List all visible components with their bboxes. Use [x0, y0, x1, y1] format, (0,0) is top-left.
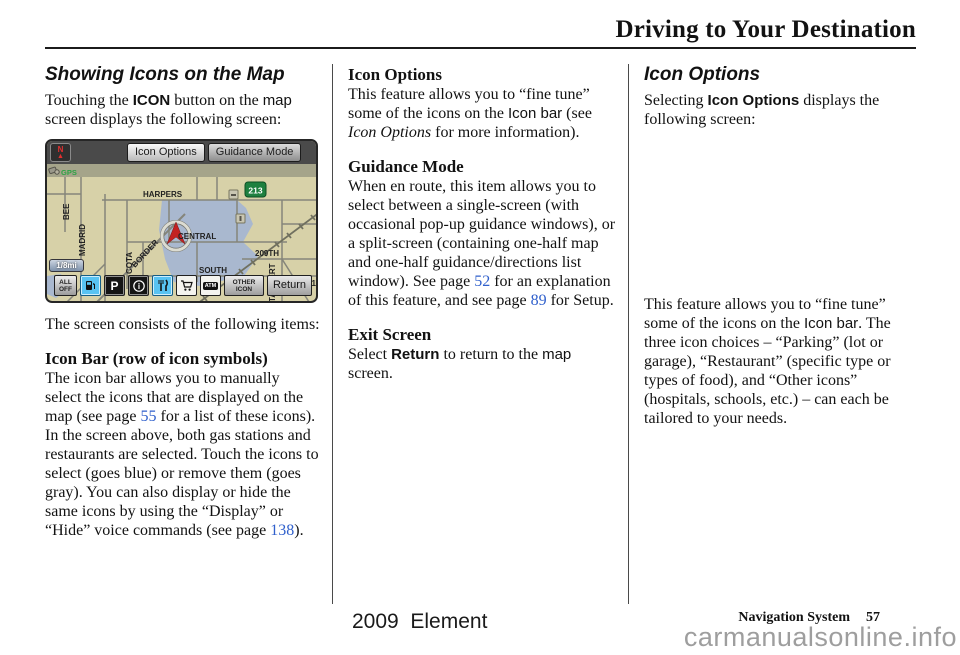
north-arrow-icon: ▲ [57, 153, 64, 160]
map-icon-bar: ALL OFF P i [54, 273, 312, 298]
shopping-icon-button[interactable] [176, 275, 197, 296]
info-icon-button[interactable]: i [128, 275, 149, 296]
fork-knife-icon [156, 279, 169, 292]
info-icon: i [132, 279, 146, 293]
column-right: Icon Options Selecting Icon Options disp… [628, 64, 916, 604]
street-label-209th: 209TH [255, 249, 279, 258]
gas-station-icon-button[interactable] [80, 275, 101, 296]
intro-paragraph: Touching the ICON button on the map scre… [45, 91, 320, 129]
figure-placeholder [644, 129, 916, 295]
footer-model-label: 2009 Element [352, 610, 487, 634]
gps-label: GPS [61, 168, 77, 177]
content-columns: Showing Icons on the Map Touching the IC… [45, 64, 916, 604]
restaurant-icon-button[interactable] [152, 275, 173, 296]
svg-text:213: 213 [248, 186, 262, 196]
page-reference-link[interactable]: 138 [270, 522, 294, 539]
other-icon-button[interactable]: OTHER ICON [224, 275, 264, 296]
gas-pump-icon [84, 279, 97, 292]
guidance-mode-heading: Guidance Mode [348, 156, 620, 177]
icon-options-paragraph: This feature allows you to “fine tune” s… [348, 85, 620, 142]
section-heading-showing-icons: Showing Icons on the Map [45, 64, 320, 86]
page-reference-link[interactable]: 55 [141, 408, 157, 425]
return-button[interactable]: Return [267, 275, 312, 296]
exit-screen-paragraph: Select Return to return to the map scree… [348, 345, 620, 383]
map-horizon-band [47, 164, 318, 177]
column-middle: Icon Options This feature allows you to … [332, 64, 628, 604]
icon-bar-paragraph: The icon bar allows you to manually sele… [45, 369, 320, 540]
page-reference-link[interactable]: 89 [531, 292, 547, 309]
icon-options-detail-paragraph: This feature allows you to “fine tune” s… [644, 295, 916, 428]
street-label-bee: BEE [62, 203, 71, 220]
consists-paragraph: The screen consists of the following ite… [45, 315, 320, 334]
icon-bar-heading: Icon Bar (row of icon symbols) [45, 348, 320, 369]
column-left: Showing Icons on the Map Touching the IC… [45, 64, 332, 604]
page-reference-link[interactable]: 52 [474, 273, 490, 290]
guidance-mode-paragraph: When en route, this item allows you to s… [348, 177, 620, 310]
parking-icon: P [110, 280, 118, 292]
north-indicator-button[interactable]: N ▲ [50, 143, 71, 162]
nav-screen-topbar: N ▲ Icon Options Guidance Mode [47, 141, 316, 164]
title-divider [45, 47, 916, 49]
icon-options-heading: Icon Options [348, 64, 620, 85]
parking-icon-button[interactable]: P [104, 275, 125, 296]
street-label-harpers: HARPERS [143, 190, 183, 199]
map-scale-badge[interactable]: 1/8mi [49, 259, 84, 272]
street-label-central: CENTRAL [178, 232, 216, 241]
page-title: Driving to Your Destination [615, 16, 916, 44]
nav-screen-figure: N ▲ Icon Options Guidance Mode [45, 139, 318, 303]
svg-text:i: i [137, 282, 139, 291]
watermark-link[interactable]: carmanualsonline.info [684, 622, 957, 653]
atm-icon: ATM [203, 282, 219, 290]
exit-screen-heading: Exit Screen [348, 324, 620, 345]
atm-icon-button[interactable]: ATM [200, 275, 221, 296]
icon-options-intro: Selecting Icon Options displays the foll… [644, 91, 916, 129]
icon-options-section-heading: Icon Options [644, 64, 916, 86]
all-off-button[interactable]: ALL OFF [54, 275, 77, 296]
icon-options-button[interactable]: Icon Options [127, 143, 205, 162]
shopping-cart-icon [180, 279, 193, 292]
highway-shield-213: 213 [245, 182, 266, 197]
street-label-madrid: MADRID [78, 224, 87, 256]
guidance-mode-button[interactable]: Guidance Mode [208, 143, 302, 162]
